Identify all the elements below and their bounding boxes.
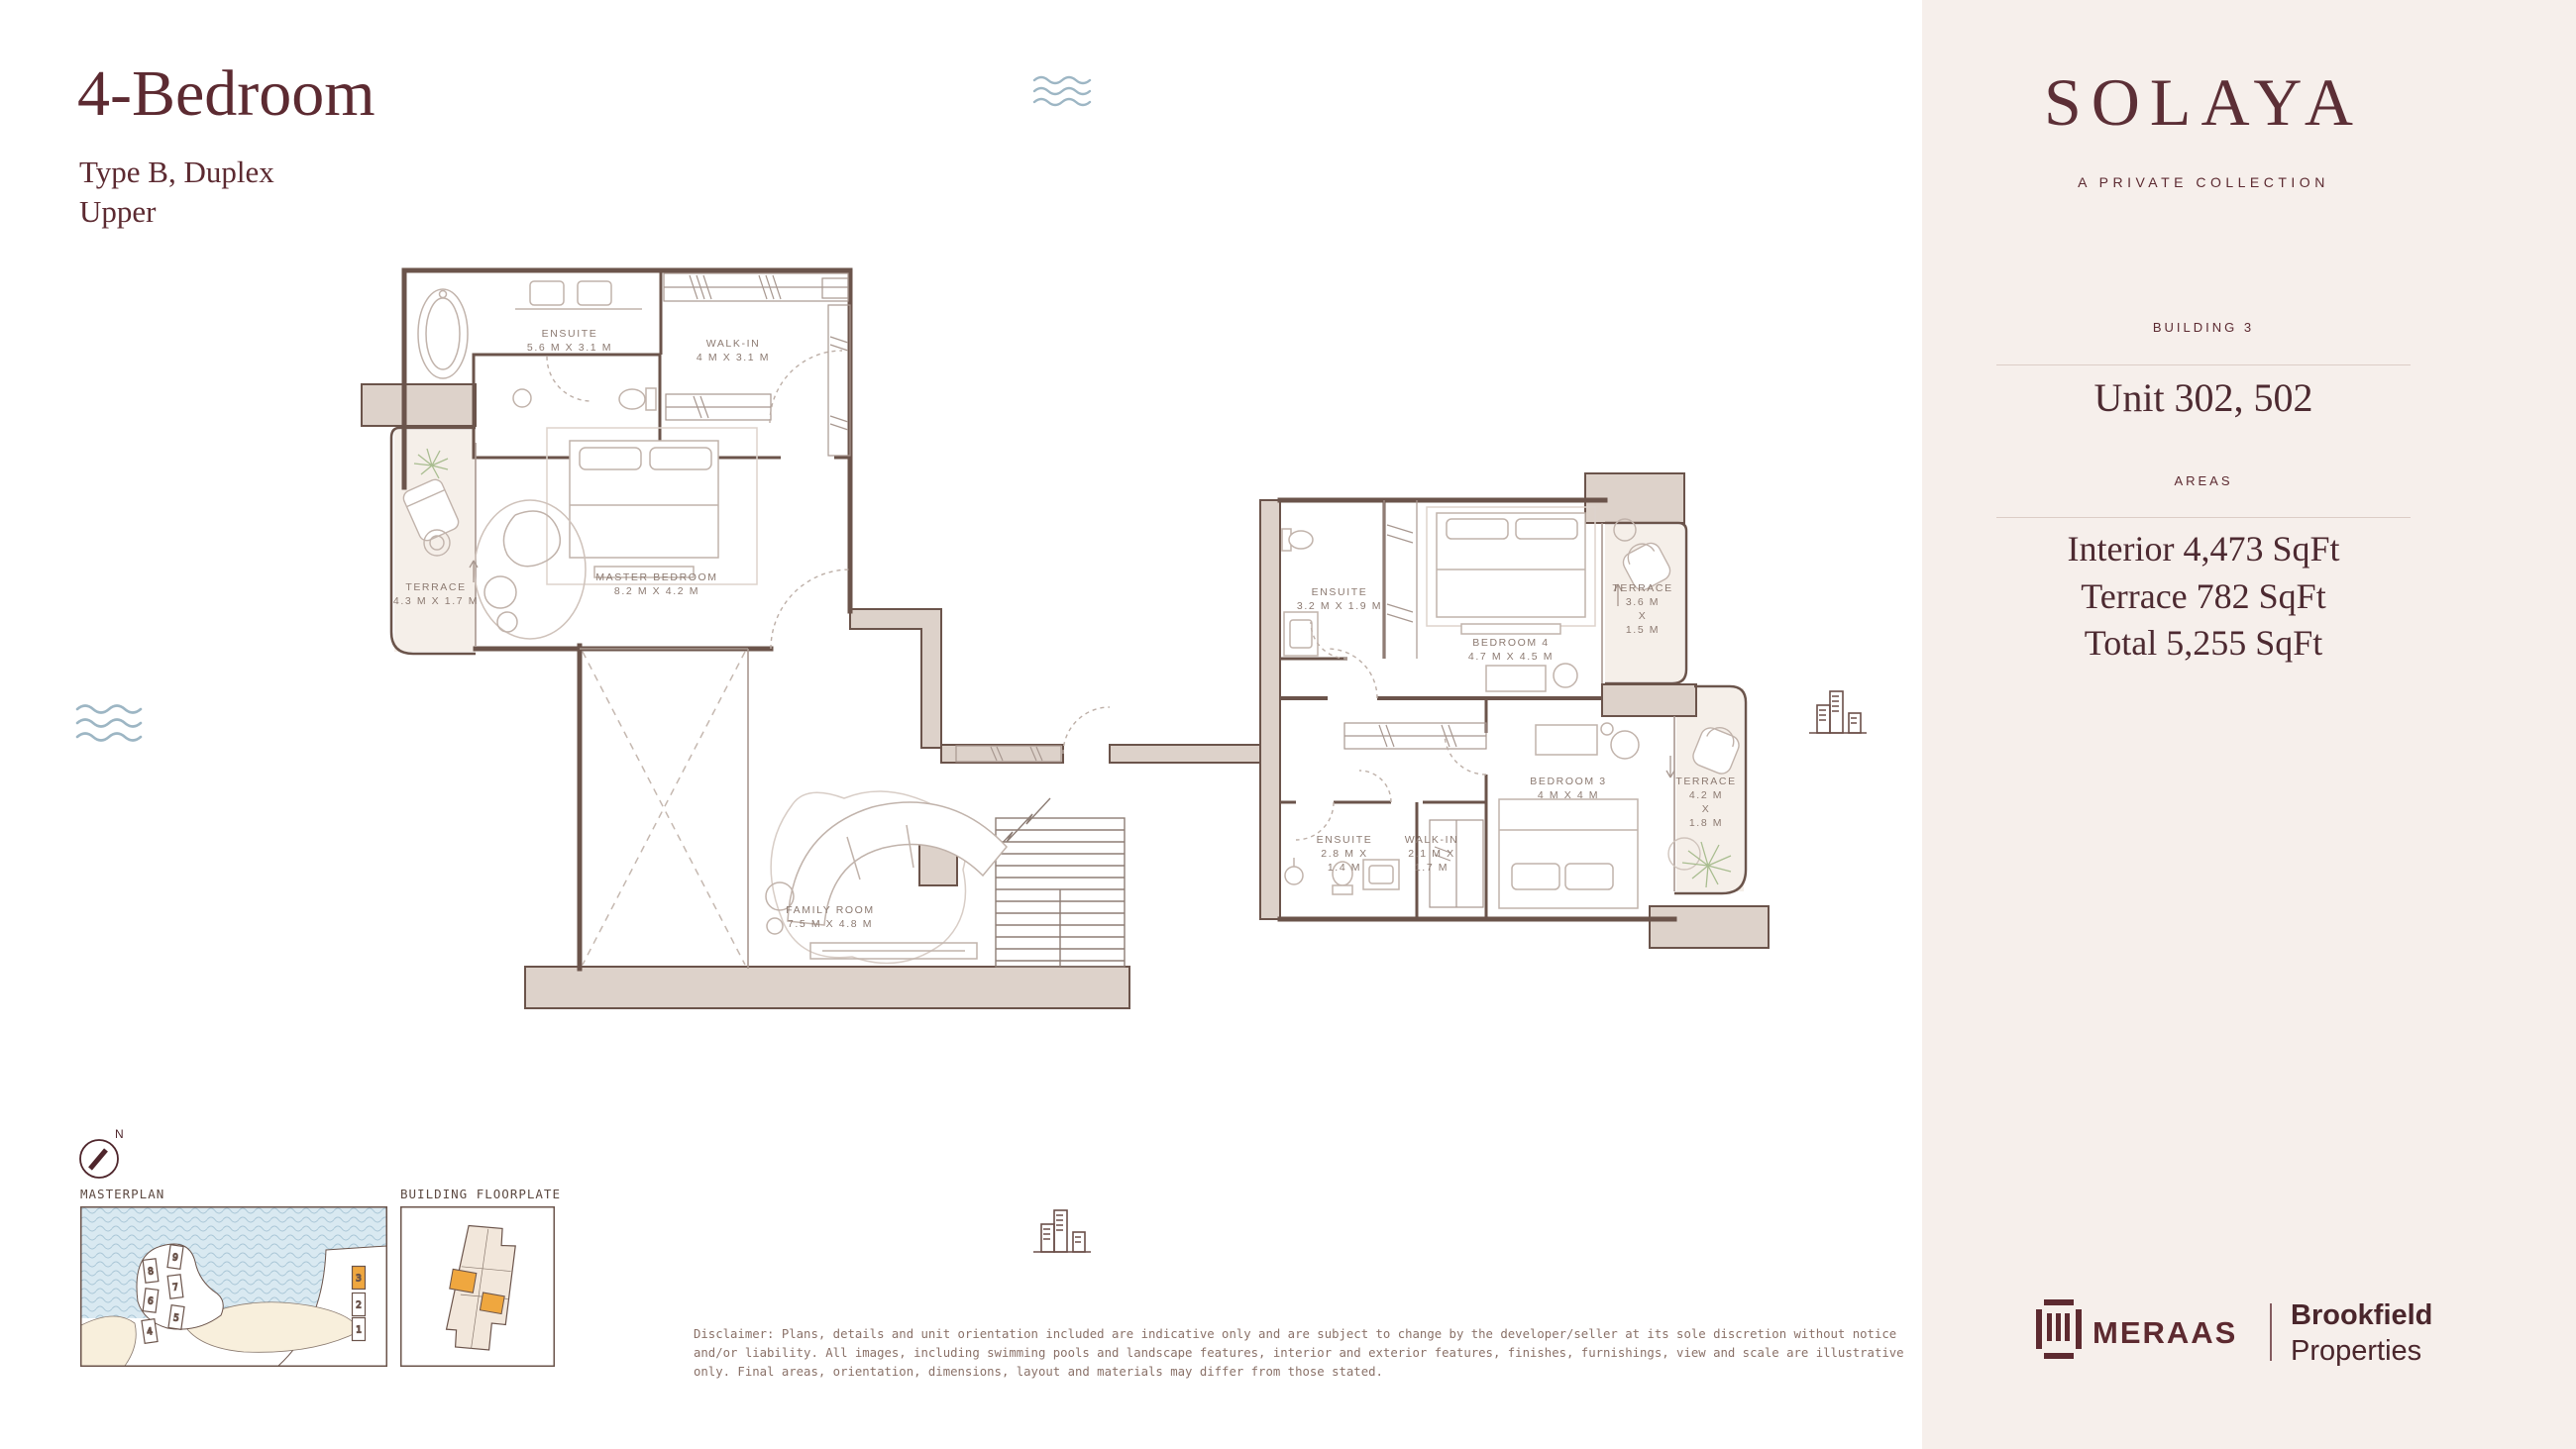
masterplan-building-highlighted: 3 [356, 1274, 362, 1285]
room-dims: 4 M X 4 M [1538, 789, 1599, 801]
room-dims: 1.8 M [1689, 817, 1723, 829]
page-title: 4-Bedroom [77, 61, 376, 127]
room-dims: 3.2 M X 1.9 M [1297, 600, 1382, 612]
room-dims: 1.7 M [1415, 862, 1449, 874]
room-dims: X [1639, 610, 1648, 622]
unit-type-label: Type B, Duplex [79, 153, 274, 192]
meraas-wordmark: MERAAS [2093, 1315, 2237, 1351]
waves-icon [1032, 73, 1092, 109]
area-values: Interior 4,473 SqFt Terrace 782 SqFt Tot… [1996, 526, 2411, 668]
logo-divider [2270, 1303, 2272, 1361]
room-dims: X [1702, 803, 1711, 815]
masterplan-thumbnail: 9 8 7 6 5 4 3 2 1 [80, 1206, 387, 1367]
building-label: BUILDING 3 [1996, 320, 2411, 335]
room-label: TERRACE [1675, 776, 1736, 787]
divider [1996, 364, 2411, 365]
brochure-page: 4-Bedroom Type B, Duplex Upper [0, 0, 2576, 1449]
areas-heading: AREAS [1996, 473, 2411, 488]
interior-area: Interior 4,473 SqFt [1996, 526, 2411, 573]
compass-icon: N [69, 1121, 141, 1192]
meraas-logo-icon [2036, 1299, 2086, 1361]
masterplan-label: MASTERPLAN [80, 1187, 164, 1201]
room-label: BEDROOM 4 [1472, 637, 1549, 649]
disclaimer-text: Disclaimer: Plans, details and unit orie… [694, 1325, 1904, 1382]
room-label: FAMILY ROOM [786, 904, 875, 916]
room-dims: 2.8 M X [1321, 848, 1367, 860]
room-dims: 4.7 M X 4.5 M [1468, 651, 1554, 663]
room-label: ENSUITE [1317, 834, 1373, 846]
waves-icon [75, 701, 145, 745]
solaya-logo: SOLAYA [1996, 63, 2411, 142]
room-label: BEDROOM 3 [1530, 776, 1606, 787]
masterplan-building: 2 [356, 1300, 362, 1311]
room-dims: 4.2 M [1689, 789, 1723, 801]
room-label: TERRACE [1612, 582, 1672, 594]
page-subtitle: Type B, Duplex Upper [79, 153, 274, 232]
brand-tagline: A PRIVATE COLLECTION [1996, 174, 2411, 190]
total-area: Total 5,255 SqFt [1996, 620, 2411, 668]
room-label: WALK-IN [706, 338, 761, 350]
room-dims: 8.2 M X 4.2 M [614, 585, 699, 597]
room-dims: 7.5 M X 4.8 M [788, 918, 873, 930]
room-label: TERRACE [405, 581, 466, 593]
terrace-area: Terrace 782 SqFt [1996, 573, 2411, 621]
divider [1996, 517, 2411, 518]
room-label: WALK-IN [1405, 834, 1459, 846]
room-label: ENSUITE [542, 328, 598, 340]
room-dims: 1.4 M [1328, 862, 1361, 874]
room-dims: 1.5 M [1626, 624, 1660, 636]
info-sidebar: SOLAYA A PRIVATE COLLECTION BUILDING 3 U… [1922, 0, 2576, 1449]
room-dims: 4.3 M X 1.7 M [393, 595, 479, 607]
room-label: MASTER BEDROOM [595, 571, 717, 583]
floorplan-drawing: ENSUITE 5.6 M X 3.1 M WALK-IN 4 M X 3.1 … [337, 238, 1843, 1030]
unit-number: Unit 302, 502 [1996, 374, 2411, 421]
buildings-icon [1031, 1206, 1095, 1258]
brookfield-wordmark: Brookfield Properties [2291, 1297, 2432, 1369]
floorplate-thumbnail [400, 1206, 555, 1367]
floorplate-label: BUILDING FLOORPLATE [400, 1187, 561, 1201]
room-dims: 4 M X 3.1 M [697, 352, 770, 363]
level-label: Upper [79, 192, 274, 232]
compass-north-label: N [115, 1127, 124, 1141]
buildings-icon [1807, 687, 1871, 739]
room-dims: 3.6 M [1626, 596, 1660, 608]
room-dims: 5.6 M X 3.1 M [527, 342, 612, 354]
room-label: ENSUITE [1312, 586, 1368, 598]
room-dims: 2.1 M X [1408, 848, 1454, 860]
masterplan-building: 1 [356, 1325, 362, 1336]
